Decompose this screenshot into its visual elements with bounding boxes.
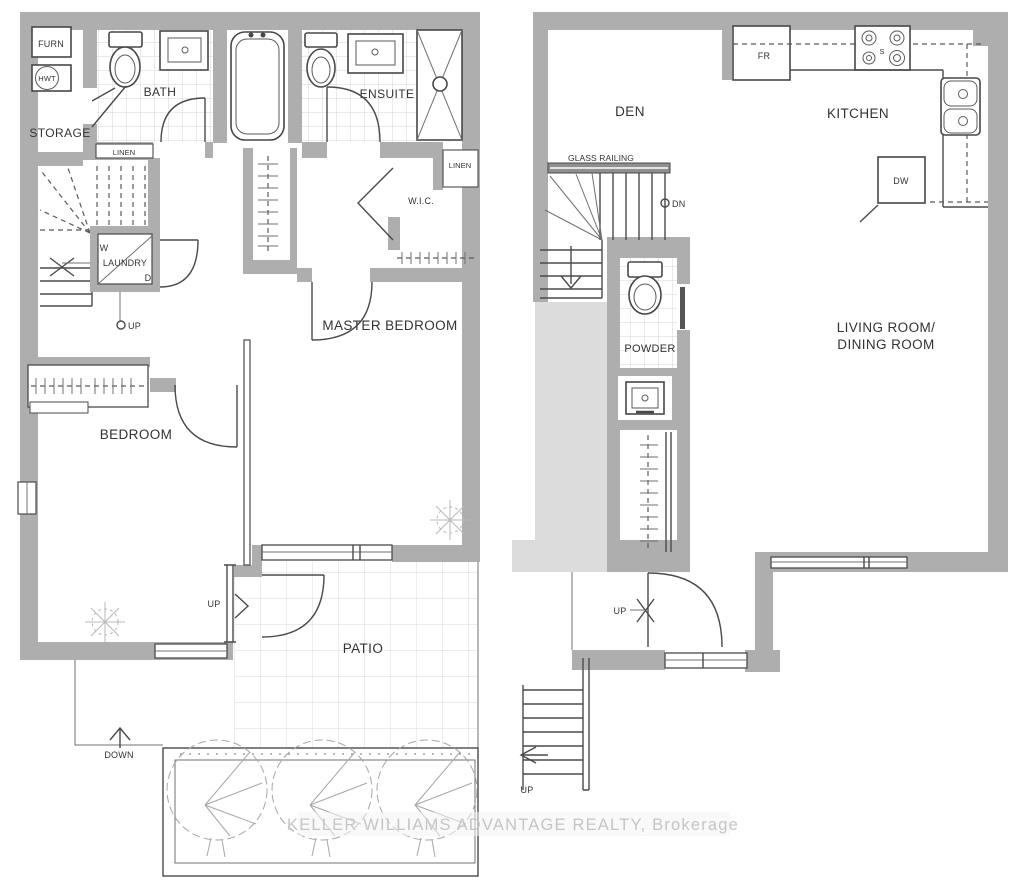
- shower-drain: [433, 77, 447, 91]
- stove-label: S: [879, 47, 884, 56]
- stair-treads-upper: [97, 166, 145, 228]
- linen-wic-label: LINEN: [449, 161, 472, 170]
- powder-label: POWDER: [624, 343, 675, 355]
- dishwasher-label: DW: [893, 176, 909, 186]
- up-entry-label: UP: [614, 606, 627, 616]
- patio-label: PATIO: [343, 641, 384, 656]
- planter-box: [163, 740, 478, 876]
- closet-shelf: [30, 402, 88, 413]
- living-room-label-line1: LIVING ROOM/: [837, 320, 936, 335]
- down-label: DOWN: [104, 750, 133, 760]
- kitchen-label: KITCHEN: [827, 106, 889, 121]
- fridge-label: FR: [758, 51, 771, 61]
- shrub-icon: [85, 602, 125, 642]
- watermark-text: KELLER WILLIAMS ADVANTAGE REALTY, Broker…: [287, 816, 739, 834]
- walkway-edge: [75, 660, 163, 745]
- hall-closet: [258, 156, 278, 254]
- master-bedroom-label: MASTER BEDROOM: [322, 318, 457, 333]
- up-exterior-label: UP: [521, 785, 534, 795]
- hwt-label: HWT: [38, 74, 56, 83]
- storage-label: STORAGE: [29, 126, 90, 140]
- left-plan: FURN HWT STORAGE BATH LINEN: [18, 12, 480, 876]
- ensuite-label: ENSUITE: [360, 87, 415, 101]
- tree-icon: [272, 740, 372, 857]
- tree-icon: [377, 740, 477, 857]
- planter-inner: [175, 760, 475, 863]
- stair-winders: [40, 168, 90, 233]
- glass-railing-label: GLASS RAILING: [568, 153, 634, 163]
- den-label: DEN: [615, 104, 645, 119]
- furn-label: FURN: [38, 39, 64, 49]
- wic-area: LINEN W.I.C.: [358, 150, 478, 264]
- bath-label: BATH: [144, 85, 177, 99]
- toilet-icon: [110, 47, 140, 87]
- bedroom-door-arc: [175, 385, 237, 447]
- counter-corner: [860, 205, 878, 222]
- stair-winders: [545, 173, 602, 240]
- laundry-closet: W LAUNDRY D: [90, 226, 198, 292]
- entry-door-arc: [648, 573, 722, 647]
- tub-faucet-dot: [249, 33, 254, 38]
- wic-label: W.I.C.: [408, 196, 434, 206]
- ensuite-toilet-icon: [307, 49, 335, 87]
- shrub-icon: [430, 500, 470, 540]
- stair-rail-right: [583, 658, 589, 790]
- toilet-tank-icon: [109, 32, 142, 47]
- laundry-door-arc: [160, 240, 198, 287]
- bedroom-area: BEDROOM: [18, 365, 237, 514]
- powder-toilet-tank: [628, 262, 662, 277]
- exterior-stairs[interactable]: UP: [521, 658, 589, 795]
- up-stairs-label: UP: [128, 321, 141, 331]
- linen-bath-label: LINEN: [113, 148, 136, 157]
- watermark: KELLER WILLIAMS ADVANTAGE REALTY, Broker…: [287, 812, 739, 836]
- floor-plan-svg: FURN HWT STORAGE BATH LINEN: [0, 0, 1025, 883]
- right-plan: DEN FR S DW KITCHEN: [512, 12, 1008, 795]
- tub-faucet-dot: [261, 33, 266, 38]
- floor-plan-image: FURN HWT STORAGE BATH LINEN: [0, 0, 1025, 883]
- wic-door-icon: [358, 168, 393, 240]
- laundry-label: LAUNDRY: [103, 258, 147, 268]
- living-room-label-line2: DINING ROOM: [837, 337, 934, 352]
- tree-icon: [167, 740, 267, 857]
- bedroom-label: BEDROOM: [100, 427, 173, 442]
- up-marker-circle: [117, 321, 125, 329]
- living-dining-room: LIVING ROOM/ DINING ROOM: [771, 320, 935, 568]
- dn-label: DN: [672, 199, 685, 209]
- bathtub-icon: [231, 32, 284, 140]
- stair-direction-cross: [50, 258, 74, 276]
- open-shaded-area: [512, 540, 535, 572]
- kitchen-area: FR S DW KITCHEN: [733, 26, 988, 222]
- open-shaded-area: [535, 302, 607, 572]
- dryer-label: D: [145, 273, 152, 283]
- stair-treads-upper: [600, 173, 665, 240]
- powder-door-leaf: [680, 287, 685, 329]
- ensuite-toilet-tank: [305, 33, 337, 47]
- stair-down-arrow: [561, 246, 581, 288]
- up-patio-label: UP: [208, 599, 221, 609]
- bedroom-master-divider-wall: [244, 340, 250, 565]
- washer-label: W: [100, 243, 109, 253]
- bathtub: [231, 32, 284, 140]
